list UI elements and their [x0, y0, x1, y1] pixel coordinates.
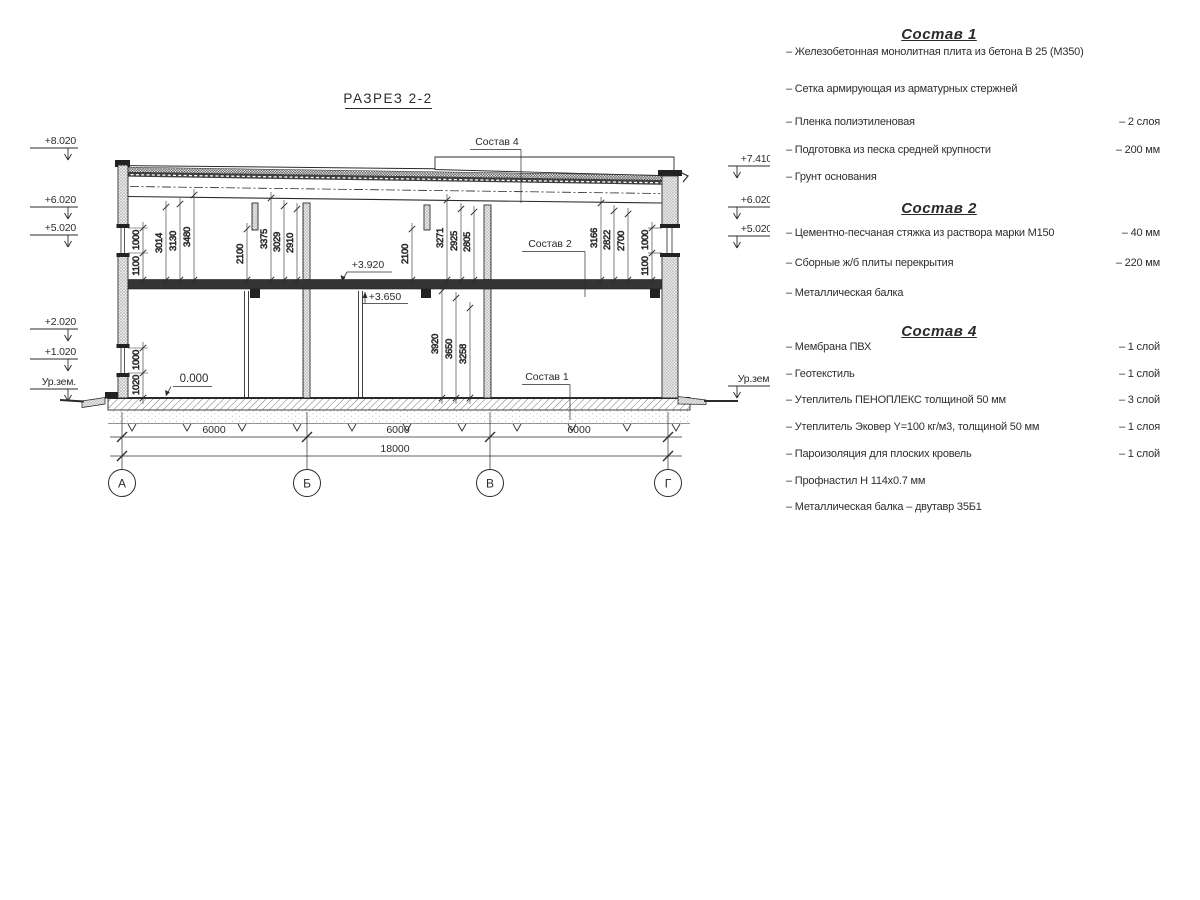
span-dim: 6000: [386, 424, 410, 436]
spec-title-sostav-4: Состав 4: [786, 323, 1092, 340]
elevation-value: +8.020: [45, 135, 77, 147]
elevation-value: +5.020: [45, 222, 77, 234]
roof: [115, 157, 688, 185]
dim-label: 3029: [272, 232, 283, 252]
floor-slab: [128, 280, 662, 290]
elevation-mark: Ур.зем.: [30, 376, 78, 401]
dims-upper-mid: 2100 3375 3029 2910: [235, 192, 300, 286]
elevation-value: +6.020: [741, 194, 770, 206]
spec-item-name: – Утеплитель ПЕНОПЛЕКС толщиной 50 мм: [786, 394, 1006, 406]
elevation-mark: +1.020: [30, 346, 78, 371]
spec-item: – Металлическая балка: [786, 287, 1160, 299]
elevation-value: Ур.зем.: [738, 373, 770, 385]
elevation-mark: Ур.зем.: [728, 373, 770, 398]
spec-item-name: – Профнастил Н 114х0.7 мм: [786, 475, 925, 487]
elevation-value: +1.020: [45, 346, 77, 358]
spec-item-name: – Железобетонная монолитная плита из бет…: [786, 46, 1084, 58]
section-drawing: РАЗРЕЗ 2-2: [0, 0, 770, 540]
level-zero: 0.000: [180, 373, 209, 385]
dim-label: 1000: [131, 230, 142, 250]
elevation-mark: +2.020: [30, 316, 78, 341]
elevation-marks-right: +7.410 +6.020 +5.020 Ур.зем.: [728, 153, 770, 398]
spec-item-value: [1154, 46, 1160, 58]
spec-item-value: [1154, 171, 1160, 183]
elevation-mark: +8.020: [30, 135, 78, 160]
dims-upper-v: 2100 3271 2925 2805: [400, 194, 477, 286]
spec-item: – Профнастил Н 114х0.7 мм: [786, 475, 1160, 487]
dim-label: 1000: [640, 230, 651, 250]
axis-label: Б: [303, 477, 311, 491]
spec-item: – Сборные ж/б плиты перекрытия – 220 мм: [786, 257, 1160, 269]
level-3920: +3.920: [352, 259, 385, 271]
dim-label: 3271: [435, 228, 446, 248]
dim-label: 1000: [131, 350, 142, 370]
elevation-mark: +5.020: [30, 222, 78, 247]
spec-item-name: – Пленка полиэтиленовая: [786, 116, 915, 128]
spec-item-value: – 1 слой: [1113, 368, 1160, 380]
dim-label: 3920: [430, 334, 441, 354]
left-wall: [117, 165, 130, 398]
leader-sostav-1: Состав 1: [525, 371, 569, 383]
dim-label: 2925: [449, 231, 460, 251]
axis-label: В: [486, 477, 494, 491]
elevation-mark: +7.410: [728, 153, 770, 178]
roof-beams: [128, 187, 662, 204]
spec-item-value: [1154, 501, 1160, 513]
spec-item: – Мембрана ПВХ – 1 слой: [786, 341, 1160, 353]
dim-label: 2700: [616, 231, 627, 251]
spec-item-name: – Сетка армирующая из арматурных стержне…: [786, 83, 1017, 95]
spec-item-value: – 1 слой: [1113, 448, 1160, 460]
elevation-value: +5.020: [741, 223, 770, 235]
spec-item-name: – Цементно-песчаная стяжка из раствора м…: [786, 227, 1054, 239]
elevation-value: +7.410: [741, 153, 770, 165]
dim-label: 3166: [589, 228, 600, 248]
spec-item-value: – 1 слой: [1113, 341, 1160, 353]
dims-upper-right: 3166 2822 2700 1000 1100: [589, 197, 662, 286]
spec-item-name: – Утеплитель Эковер Y=100 кг/м3, толщино…: [786, 421, 1039, 433]
dim-label: 3375: [259, 229, 270, 249]
spec-item: – Металлическая балка – двутавр 35Б1: [786, 501, 1160, 513]
spec-item-value: [1154, 287, 1160, 299]
spec-item-value: [1154, 83, 1160, 95]
drawing-title-text: РАЗРЕЗ 2-2: [343, 91, 432, 106]
drawing-sheet: РАЗРЕЗ 2-2: [0, 0, 1200, 900]
dim-label: 1100: [640, 256, 651, 275]
spec-item-name: – Пароизоляция для плоских кровель: [786, 448, 972, 460]
dim-label: 2100: [400, 244, 411, 264]
dim-label: 3480: [182, 227, 193, 247]
dim-label: 2100: [235, 244, 246, 264]
spec-item: – Геотекстиль – 1 слой: [786, 368, 1160, 380]
spec-item-name: – Грунт основания: [786, 171, 877, 183]
axis-label: А: [118, 477, 126, 491]
spec-item: – Цементно-песчаная стяжка из раствора м…: [786, 227, 1160, 239]
elevation-marks-left: +8.020 +6.020 +5.020 +2.020 +1.020: [30, 135, 78, 401]
elevation-mark: +5.020: [728, 223, 770, 248]
leader-sostav-2: Состав 2: [528, 238, 572, 250]
spec-item: – Сетка армирующая из арматурных стержне…: [786, 83, 1160, 95]
spec-item-name: – Подготовка из песка средней крупности: [786, 144, 991, 156]
spec-item-value: – 2 слоя: [1113, 116, 1160, 128]
spec-item-value: – 200 мм: [1110, 144, 1160, 156]
axis-label: Г: [665, 477, 672, 491]
spec-item-name: – Мембрана ПВХ: [786, 341, 871, 353]
spec-item-value: – 220 мм: [1110, 257, 1160, 269]
span-dim: 6000: [567, 424, 591, 436]
spec-item-value: [1154, 475, 1160, 487]
dim-label: 2910: [285, 233, 296, 253]
dim-label: 3130: [168, 231, 179, 251]
elevation-value: +6.020: [45, 194, 77, 206]
elevation-value: +2.020: [45, 316, 77, 328]
level-3650: +3.650: [369, 291, 402, 303]
dim-label: 2822: [602, 230, 613, 250]
dim-label: 3258: [458, 344, 469, 364]
right-wall: [660, 176, 680, 398]
spec-title-sostav-2: Состав 2: [786, 200, 1092, 217]
spec-item: – Грунт основания: [786, 171, 1160, 183]
dim-label: 3650: [444, 339, 455, 359]
dim-label: 3014: [154, 233, 165, 253]
spec-item: – Пленка полиэтиленовая – 2 слоя: [786, 116, 1160, 128]
dim-label: 1100: [131, 256, 142, 275]
spec-title-sostav-1: Состав 1: [786, 26, 1092, 43]
spec-item-name: – Металлическая балка: [786, 287, 903, 299]
dims-upper-left: 1000 1100 3014 3130 3480: [128, 189, 197, 286]
spec-item-value: – 3 слой: [1113, 394, 1160, 406]
elevation-mark: +6.020: [728, 194, 770, 219]
span-dim: 6000: [202, 424, 226, 436]
right-parapet-cap: [658, 170, 682, 176]
dim-label: 2805: [462, 232, 473, 252]
spec-panel: Состав 1 – Железобетонная монолитная пли…: [786, 0, 1160, 540]
axis-bubbles: А Б В Г: [109, 470, 682, 497]
spec-item-value: – 1 слоя: [1113, 421, 1160, 433]
dim-label: 1020: [131, 375, 142, 395]
spec-item: – Железобетонная монолитная плита из бет…: [786, 46, 1160, 58]
spec-item-name: – Металлическая балка – двутавр 35Б1: [786, 501, 982, 513]
leader-sostav-4: Состав 4: [475, 136, 519, 148]
spec-item: – Утеплитель Эковер Y=100 кг/м3, толщино…: [786, 421, 1160, 433]
elevation-mark: +6.020: [30, 194, 78, 219]
spec-item-value: – 40 мм: [1116, 227, 1160, 239]
spec-item: – Пароизоляция для плоских кровель – 1 с…: [786, 448, 1160, 460]
elevation-value: Ур.зем.: [42, 376, 76, 388]
spec-item-name: – Сборные ж/б плиты перекрытия: [786, 257, 953, 269]
total-dim: 18000: [380, 443, 409, 455]
drawing-title: РАЗРЕЗ 2-2: [343, 91, 432, 109]
spec-item: – Утеплитель ПЕНОПЛЕКС толщиной 50 мм – …: [786, 394, 1160, 406]
spec-item: – Подготовка из песка средней крупности …: [786, 144, 1160, 156]
spec-item-name: – Геотекстиль: [786, 368, 855, 380]
